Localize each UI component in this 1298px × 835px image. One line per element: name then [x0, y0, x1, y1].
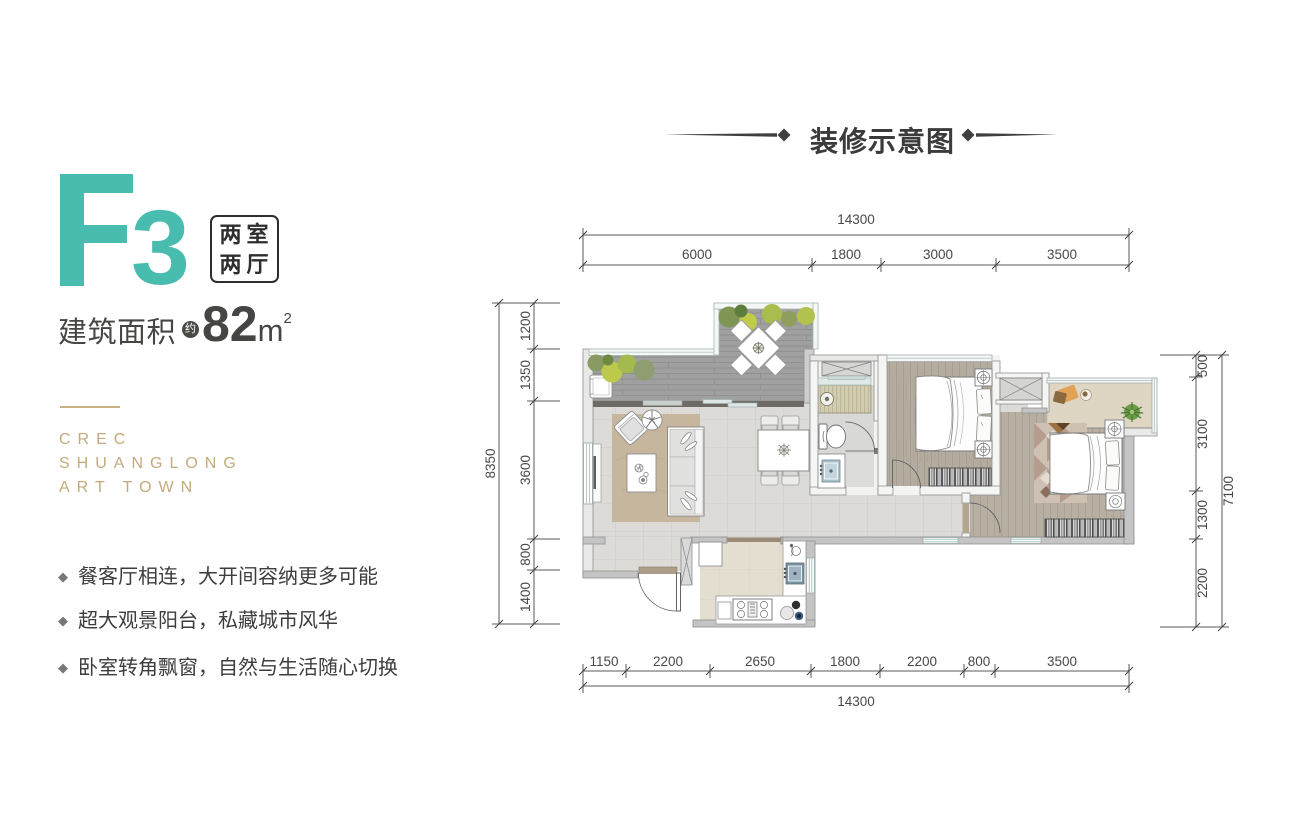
svg-text:8350: 8350 — [483, 448, 498, 478]
svg-text:1300: 1300 — [1195, 500, 1210, 530]
svg-text:1350: 1350 — [518, 360, 533, 390]
svg-text:2200: 2200 — [653, 654, 683, 669]
svg-text:3600: 3600 — [518, 455, 533, 485]
svg-text:3500: 3500 — [1047, 247, 1077, 262]
svg-text:2200: 2200 — [907, 654, 937, 669]
svg-text:6000: 6000 — [682, 247, 712, 262]
svg-text:1150: 1150 — [589, 654, 618, 669]
svg-text:14300: 14300 — [837, 694, 875, 709]
svg-text:3000: 3000 — [923, 247, 953, 262]
svg-text:7100: 7100 — [1221, 476, 1236, 506]
svg-text:800: 800 — [968, 654, 991, 669]
svg-text:2200: 2200 — [1195, 568, 1210, 598]
svg-text:1800: 1800 — [830, 654, 860, 669]
svg-text:1800: 1800 — [831, 247, 861, 262]
svg-text:2650: 2650 — [745, 654, 775, 669]
svg-text:500: 500 — [1195, 355, 1210, 378]
svg-text:14300: 14300 — [837, 212, 875, 227]
svg-text:3100: 3100 — [1195, 419, 1210, 449]
svg-text:3500: 3500 — [1047, 654, 1077, 669]
svg-text:1400: 1400 — [518, 582, 533, 612]
svg-text:800: 800 — [518, 543, 533, 566]
svg-text:1200: 1200 — [518, 311, 533, 341]
